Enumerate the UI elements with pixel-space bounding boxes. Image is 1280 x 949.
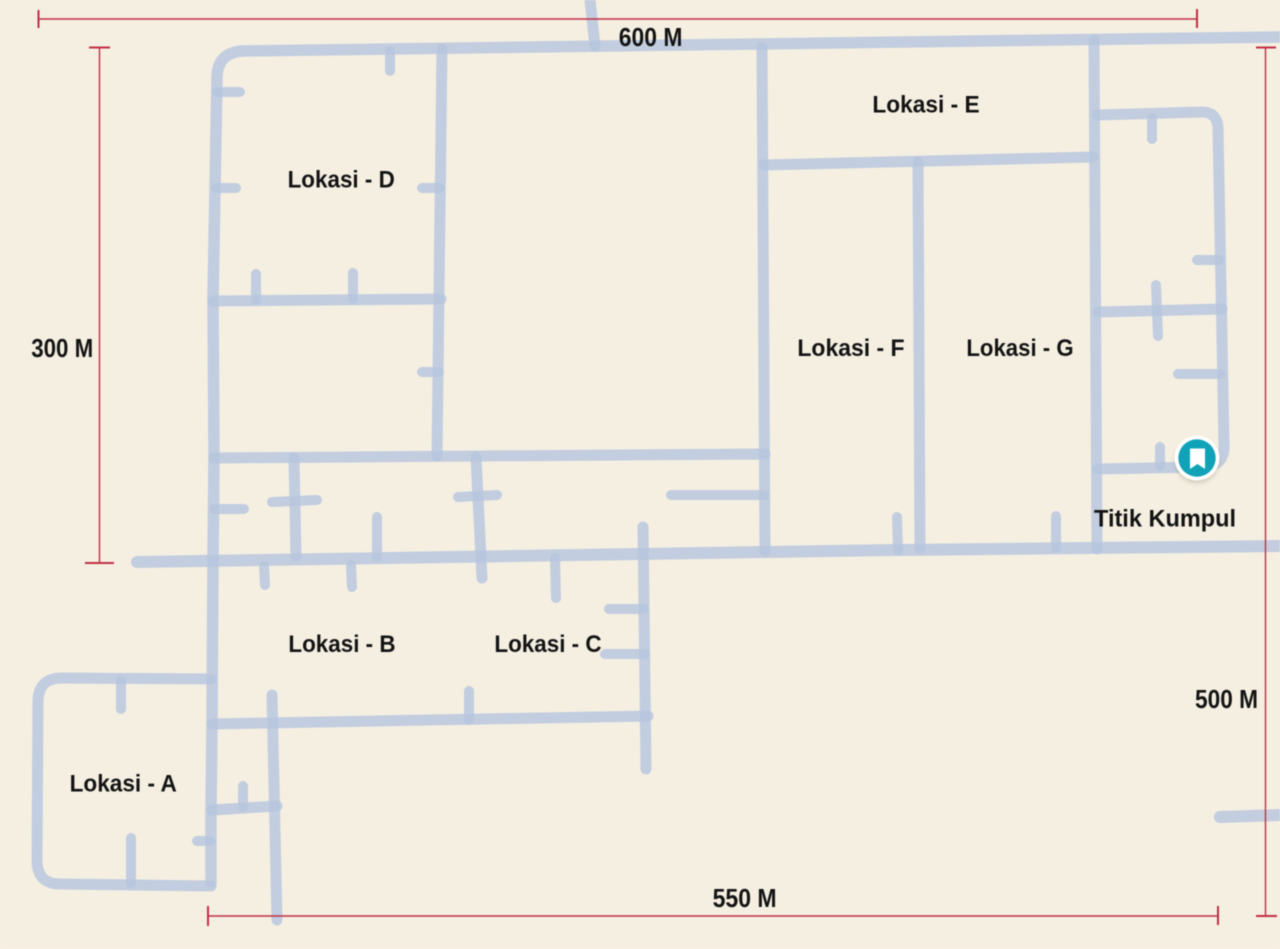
svg-text:Lokasi - C: Lokasi - C xyxy=(494,631,601,658)
svg-text:Lokasi - A: Lokasi - A xyxy=(70,771,177,798)
svg-text:Lokasi - E: Lokasi - E xyxy=(872,92,979,119)
svg-text:Lokasi - B: Lokasi - B xyxy=(288,631,395,658)
svg-text:300 M: 300 M xyxy=(31,333,93,363)
svg-text:550 M: 550 M xyxy=(713,883,777,913)
svg-text:Lokasi - D: Lokasi - D xyxy=(288,166,395,193)
svg-text:Titik Kumpul: Titik Kumpul xyxy=(1094,506,1236,533)
svg-text:Lokasi - F: Lokasi - F xyxy=(797,335,904,362)
svg-text:Lokasi - G: Lokasi - G xyxy=(966,335,1073,362)
svg-text:600 M: 600 M xyxy=(619,22,683,52)
svg-text:500 M: 500 M xyxy=(1195,684,1258,714)
